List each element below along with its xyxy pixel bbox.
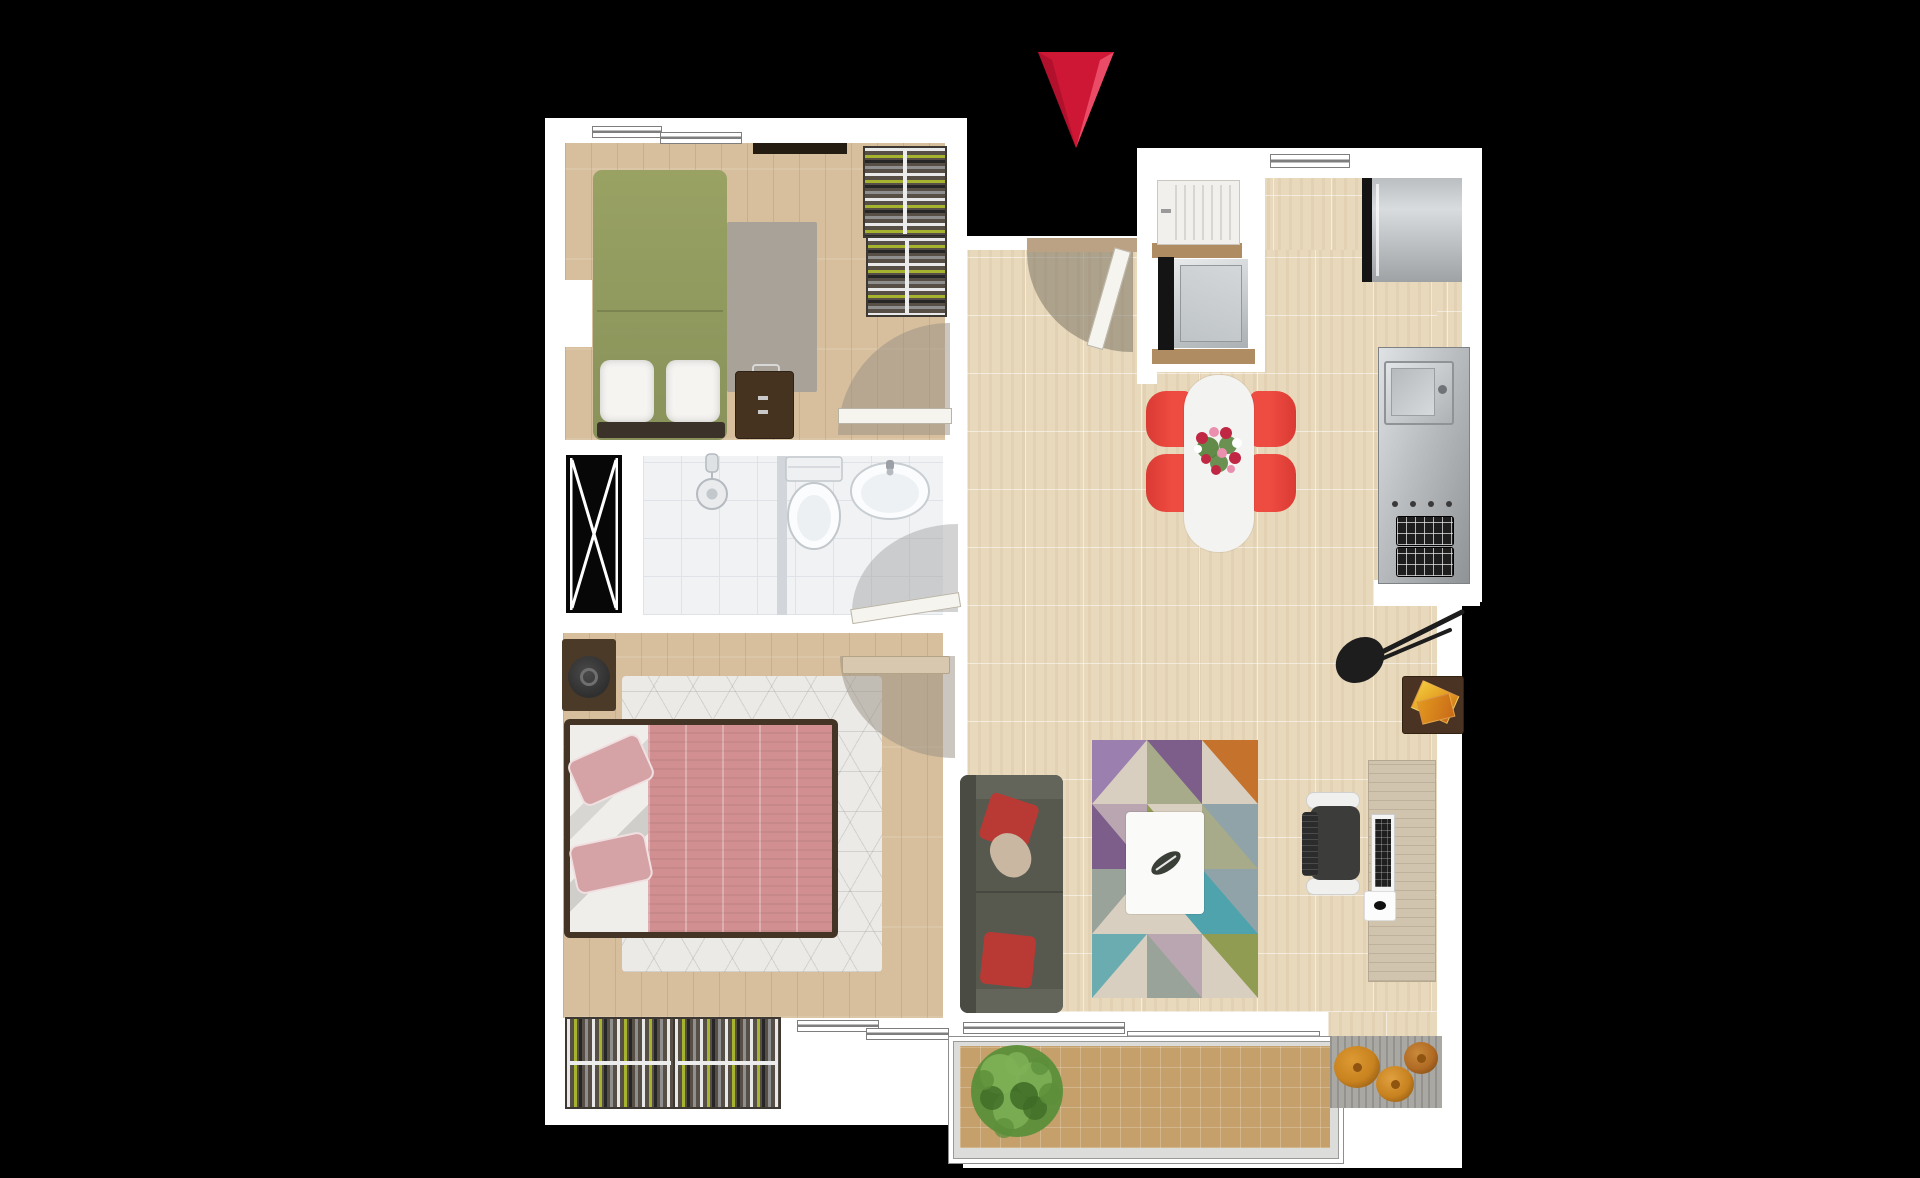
fridge <box>1362 178 1462 282</box>
entrance-arrow-icon <box>1032 46 1120 154</box>
suitcase <box>735 371 794 439</box>
stove-knob <box>1392 501 1398 507</box>
counter-strip <box>1152 243 1242 258</box>
pouf <box>1334 1046 1380 1088</box>
wardrobe-rail <box>903 150 907 234</box>
shower-icon <box>694 452 730 514</box>
washer-ribs <box>1175 185 1235 240</box>
toilet-icon <box>783 454 845 554</box>
pouf-center <box>1417 1054 1426 1063</box>
stove-knob <box>1446 501 1452 507</box>
pink-duvet <box>648 725 832 932</box>
red-cushion <box>979 931 1036 988</box>
pouf-center <box>1353 1063 1362 1072</box>
chair-backrest <box>1302 812 1318 876</box>
keyboard-keys <box>1375 819 1391 887</box>
pillow <box>666 360 720 422</box>
mouse <box>1374 901 1386 910</box>
pillow <box>600 360 654 422</box>
bed-footboard <box>597 422 725 438</box>
dishwasher-panel <box>1158 257 1174 350</box>
bed-seam <box>597 310 723 312</box>
sofa-armrest <box>976 775 1063 799</box>
master-door-leaf <box>842 656 950 674</box>
side-table <box>1402 676 1464 734</box>
floor-plan-canvas <box>0 0 1920 1178</box>
fridge-handle <box>1376 184 1379 276</box>
fridge-hinge <box>1362 178 1372 282</box>
chair-arm <box>1306 878 1360 895</box>
pouf <box>1404 1042 1438 1074</box>
bedroom2-window-2 <box>660 132 742 144</box>
pouf-center <box>1391 1080 1400 1089</box>
kitchen-window <box>1270 154 1350 168</box>
bedroom2-door-leaf <box>838 408 952 424</box>
floor-lamp-icon <box>1330 596 1470 688</box>
stove-burners <box>1396 547 1454 577</box>
washer-handle <box>1161 209 1171 213</box>
sofa-seam <box>976 891 1063 893</box>
sink-faucet <box>1438 385 1447 394</box>
suitcase-latch <box>758 396 768 400</box>
stove-burners <box>1396 516 1454 546</box>
speaker-device <box>568 656 610 698</box>
stove-knob <box>1428 501 1434 507</box>
washing-machine <box>1157 180 1240 245</box>
master-window-2 <box>866 1028 949 1040</box>
closet-unit <box>673 1017 781 1109</box>
dining-chair <box>1250 454 1296 512</box>
suitcase-latch <box>758 410 768 414</box>
sink-icon <box>848 454 932 522</box>
closet-rail <box>677 1061 777 1065</box>
bedroom2-window-1 <box>592 126 662 138</box>
office-chair <box>1302 792 1364 898</box>
table-decor <box>1146 843 1186 883</box>
speaker-ring <box>580 668 598 686</box>
dishwasher <box>1158 257 1253 350</box>
wardrobe-unit <box>866 236 947 317</box>
kitchen-sink <box>1384 361 1454 425</box>
stove-knob <box>1410 501 1416 507</box>
sink-basin <box>1391 368 1435 416</box>
closet-unit <box>565 1017 675 1109</box>
counter-strip <box>1152 349 1255 364</box>
pouf <box>1376 1066 1414 1102</box>
balcony-plant <box>962 1036 1072 1146</box>
bedroom2-lintel <box>753 143 847 154</box>
bedroom2-wall-pier <box>565 280 592 347</box>
wardrobe-unit <box>863 146 947 238</box>
sofa-armrest <box>976 989 1063 1013</box>
dishwasher-door <box>1174 259 1248 348</box>
shaft-icon <box>566 455 622 613</box>
balcony-window-1 <box>963 1022 1125 1034</box>
sofa-back <box>960 775 976 1013</box>
mouse-pad <box>1364 891 1396 921</box>
flower-bouquet <box>1188 418 1250 480</box>
keyboard <box>1371 814 1395 892</box>
dining-chair <box>1250 391 1296 447</box>
dishwasher-inner <box>1180 265 1242 342</box>
wardrobe-rail <box>905 240 909 313</box>
closet-rail <box>569 1061 671 1065</box>
